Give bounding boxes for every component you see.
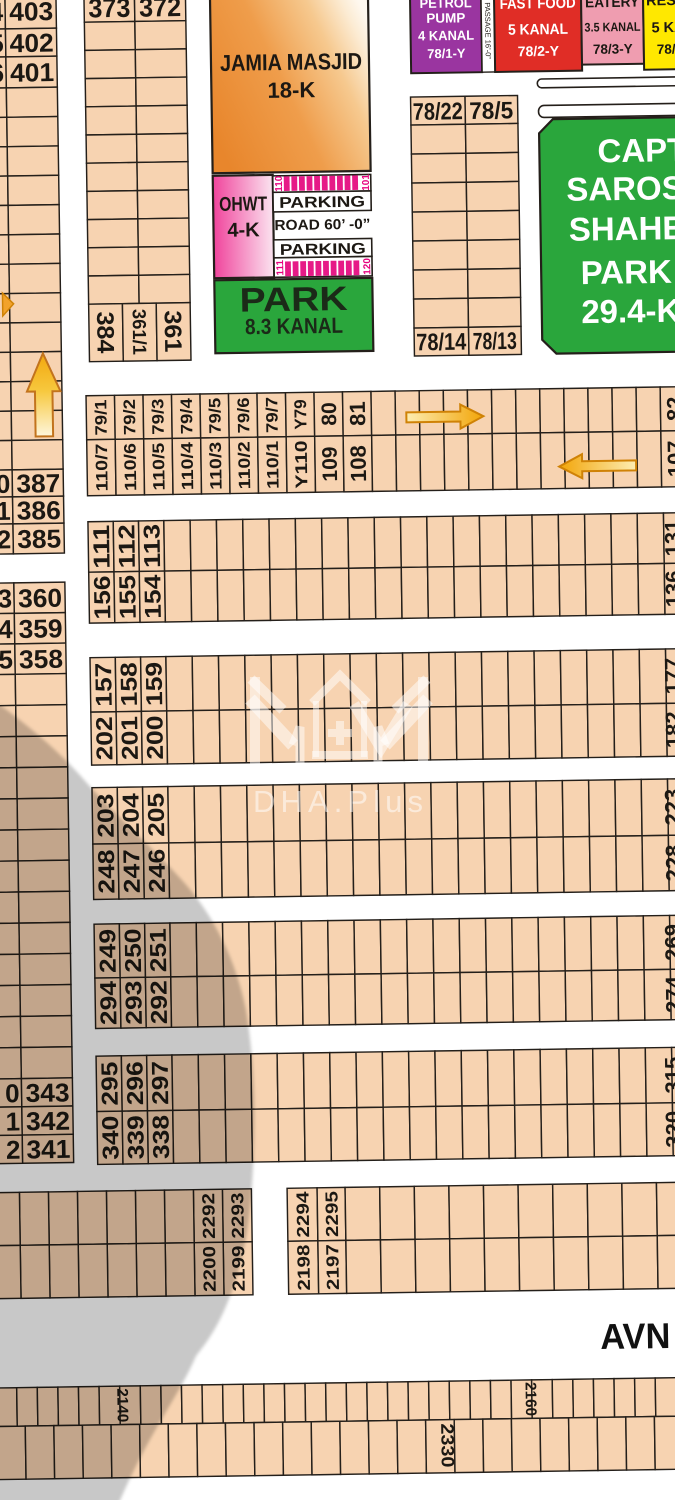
svg-text:112: 112 [113,524,140,568]
svg-text:80: 80 [318,402,341,426]
svg-text:78/2-Y: 78/2-Y [518,43,560,60]
svg-text:110: 110 [274,175,285,192]
svg-text:387: 387 [16,468,60,499]
svg-text:182: 182 [661,711,675,748]
svg-text:205: 205 [143,792,170,837]
svg-text:1: 1 [0,496,11,526]
svg-text:2330: 2330 [437,1423,458,1467]
svg-text:373: 373 [88,0,130,23]
svg-text:CAPT: CAPT [597,131,675,169]
svg-text:4: 4 [0,614,13,644]
svg-text:79/4: 79/4 [178,397,197,434]
svg-text:EATERY: EATERY [585,0,640,11]
svg-text:156: 156 [89,575,116,619]
svg-text:110/2: 110/2 [235,441,254,489]
svg-text:401: 401 [10,57,54,88]
svg-text:110/6: 110/6 [121,443,140,491]
svg-text:110/7: 110/7 [93,443,112,491]
svg-text:159: 159 [141,662,168,706]
svg-text:402: 402 [9,28,53,59]
svg-text:OHWT: OHWT [219,193,267,216]
svg-text:ROAD 60’ -0”: ROAD 60’ -0” [274,217,370,234]
svg-text:372: 372 [139,0,181,23]
svg-text:AVN: AVN [600,1315,671,1357]
svg-text:79/3: 79/3 [149,399,168,435]
svg-text:79/5: 79/5 [206,398,225,434]
svg-text:5: 5 [0,28,4,58]
svg-text:2198: 2198 [293,1244,314,1291]
svg-text:29.4-K: 29.4-K [581,292,675,331]
svg-text:78/5: 78/5 [469,97,513,125]
svg-text:5: 5 [0,644,13,674]
svg-text:223: 223 [660,789,675,826]
svg-text:SAROSH: SAROSH [566,169,675,208]
svg-text:2160: 2160 [521,1382,539,1416]
svg-text:2295: 2295 [321,1191,342,1238]
svg-text:2294: 2294 [292,1191,313,1238]
svg-text:107: 107 [663,440,675,477]
svg-text:78/3-Y: 78/3-Y [593,41,633,57]
svg-text:384: 384 [91,311,119,354]
svg-text:109: 109 [319,446,343,481]
svg-text:78/4-Y: 78/4-Y [657,41,675,57]
svg-text:155: 155 [114,575,141,620]
svg-text:3: 3 [0,583,12,613]
svg-text:385: 385 [17,523,61,554]
svg-text:136: 136 [661,570,675,607]
svg-text:403: 403 [9,0,53,27]
svg-text:2: 2 [0,524,11,554]
svg-text:78/22: 78/22 [413,98,463,126]
svg-text:269: 269 [660,924,675,961]
svg-text:110/1: 110/1 [264,441,283,489]
svg-text:111: 111 [275,259,286,275]
svg-text:110/4: 110/4 [178,441,197,490]
svg-text:79/7: 79/7 [263,397,282,433]
svg-text:201: 201 [116,716,143,761]
svg-text:359: 359 [18,613,62,644]
svg-text:2197: 2197 [322,1244,343,1290]
svg-text:358: 358 [19,644,63,675]
svg-text:361: 361 [159,310,187,352]
svg-text:360: 360 [18,583,62,614]
svg-text:18-K: 18-K [267,77,315,103]
svg-text:177: 177 [660,658,675,695]
svg-text:RESTAU: RESTAU [646,0,675,9]
svg-text:131: 131 [660,520,675,557]
svg-text:228: 228 [661,844,675,881]
svg-text:3.5 KANAL: 3.5 KANAL [584,20,641,35]
svg-text:78/14: 78/14 [416,329,467,357]
svg-text:108: 108 [346,445,372,482]
svg-text:78/1-Y: 78/1-Y [427,46,466,62]
svg-text:FAST FOOD: FAST FOOD [499,0,575,13]
svg-text:79/2: 79/2 [121,399,140,435]
svg-text:5 KANAL: 5 KANAL [651,19,675,36]
svg-text:320: 320 [661,1111,675,1148]
svg-text:SHAHEED: SHAHEED [569,208,675,247]
svg-text:120: 120 [362,258,373,275]
svg-text:111: 111 [88,524,115,569]
svg-text:79/6: 79/6 [235,397,254,433]
svg-text:386: 386 [17,495,61,526]
svg-text:0: 0 [0,469,11,499]
svg-text:5 KANAL: 5 KANAL [508,21,568,39]
svg-text:110/3: 110/3 [207,442,226,490]
svg-text:Y79: Y79 [291,399,310,430]
svg-text:158: 158 [115,662,142,707]
svg-text:157: 157 [90,663,117,707]
svg-text:78/13: 78/13 [473,328,517,356]
svg-text:82: 82 [662,396,675,421]
svg-text:4 KANAL: 4 KANAL [418,28,474,44]
svg-text:8.3 KANAL: 8.3 KANAL [245,313,343,339]
svg-text:113: 113 [138,524,165,568]
svg-text:274: 274 [661,975,675,1013]
svg-text:PARKING: PARKING [279,194,365,212]
svg-text:202: 202 [91,716,118,760]
svg-text:154: 154 [139,574,166,619]
svg-text:6: 6 [0,58,4,88]
svg-text:JAMIA MASJID: JAMIA MASJID [220,48,362,76]
svg-text:PASSAGE 16’-0”: PASSAGE 16’-0” [483,2,493,59]
svg-text:79/1: 79/1 [92,399,111,435]
svg-text:4-K: 4-K [227,219,260,241]
svg-text:101: 101 [361,174,372,191]
svg-text:PARK: PARK [580,253,672,291]
svg-text:200: 200 [141,715,168,759]
svg-text:361/1: 361/1 [128,309,150,356]
svg-text:Y110: Y110 [292,440,312,488]
svg-text:PUMP: PUMP [426,10,465,26]
svg-text:81: 81 [345,401,370,426]
svg-text:315: 315 [660,1057,675,1094]
svg-text:110/5: 110/5 [150,443,169,491]
